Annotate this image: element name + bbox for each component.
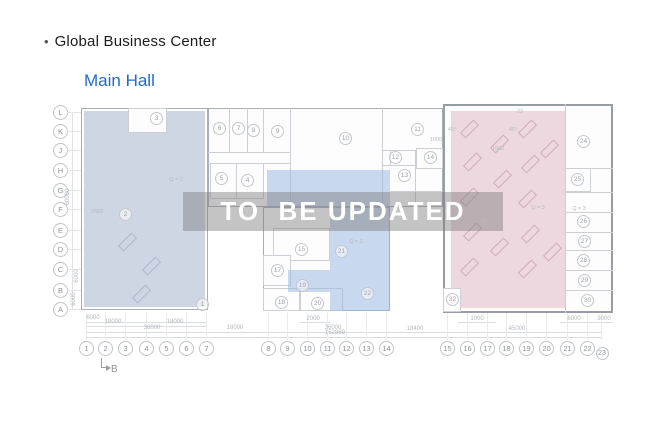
axis-extension-line — [506, 313, 507, 340]
dim-line — [72, 112, 73, 310]
to-be-updated-watermark: TO BE UPDATED — [183, 192, 503, 231]
axis-extension-line — [346, 313, 347, 340]
zone-middle — [288, 270, 330, 292]
wall — [565, 250, 613, 251]
axis-tick — [67, 131, 81, 132]
room-25-outline — [565, 168, 591, 192]
col-axis-label: 15 — [440, 341, 455, 356]
row-axis-label: H — [53, 163, 68, 178]
wall — [565, 104, 566, 313]
row-axis-label: J — [53, 143, 68, 158]
room-3-outline — [128, 108, 167, 133]
wall — [390, 150, 391, 165]
axis-tick — [67, 249, 81, 250]
page-header: • Global Business Center — [44, 33, 217, 50]
axis-extension-line — [287, 313, 288, 340]
axis-extension-line — [587, 313, 588, 340]
axis-extension-line — [467, 313, 468, 340]
col-axis-label: 19 — [519, 341, 534, 356]
col-axis-label: 12 — [339, 341, 354, 356]
wall — [382, 165, 415, 166]
dim-line — [86, 322, 206, 323]
room-32-outline — [443, 288, 461, 312]
col-axis-label: 22 — [580, 341, 595, 356]
col-axis-label: 1 — [79, 341, 94, 356]
col-axis-label: 20 — [539, 341, 554, 356]
axis-extension-line — [447, 313, 448, 340]
page-title: Global Business Center — [55, 33, 217, 50]
room-17-outline — [263, 255, 291, 286]
axis-tick — [67, 150, 81, 151]
dim-line — [86, 337, 601, 338]
col-axis-label: 14 — [379, 341, 394, 356]
row-axis-label: L — [53, 105, 68, 120]
axis-extension-line — [386, 313, 387, 340]
axis-extension-line — [307, 313, 308, 340]
col-axis-label: 2 — [98, 341, 113, 356]
dim-line — [560, 322, 613, 323]
bullet-icon: • — [44, 35, 49, 48]
col-axis-label: 13 — [359, 341, 374, 356]
room-14-outline — [416, 148, 443, 169]
row-axis-label: D — [53, 242, 68, 257]
row-axis-label: C — [53, 262, 68, 277]
dim-line — [458, 322, 496, 323]
hall-title-link[interactable]: Main Hall — [84, 71, 155, 91]
dimension-label: 152869 — [320, 330, 350, 336]
axis-extension-line — [487, 313, 488, 340]
dimension-label: 18000 — [220, 325, 250, 331]
axis-tick — [67, 309, 81, 310]
wall — [565, 232, 613, 233]
axis-extension-line — [327, 313, 328, 340]
wall — [565, 192, 613, 193]
axis-extension-line — [366, 313, 367, 340]
col-axis-label: 18 — [499, 341, 514, 356]
col-axis-label: 5 — [159, 341, 174, 356]
row-axis-label: F — [53, 202, 68, 217]
col-axis-label: 21 — [560, 341, 575, 356]
wall — [229, 108, 230, 152]
wall — [247, 108, 248, 152]
wall — [565, 212, 613, 213]
floor-plan-page: • Global Business Center Main Hall — [0, 0, 660, 440]
axis-tick — [67, 209, 81, 210]
axis-tick — [67, 269, 81, 270]
axis-tick — [67, 170, 81, 171]
row-axis-label: A — [53, 302, 68, 317]
col-axis-label: 11 — [320, 341, 335, 356]
axis-tick — [67, 290, 81, 291]
axis-extension-line — [601, 313, 602, 340]
col-axis-label: 9 — [280, 341, 295, 356]
axis-extension-line — [546, 313, 547, 340]
dimension-label: 6000 — [78, 315, 108, 321]
wall — [565, 290, 613, 291]
row-axis-label: B — [53, 283, 68, 298]
row-axis-label: G — [53, 183, 68, 198]
wall — [208, 152, 290, 153]
dimension-label-vertical: 6000 — [74, 261, 80, 291]
col-axis-label: 6 — [179, 341, 194, 356]
dim-line — [300, 322, 330, 323]
col-axis-label: 23 — [596, 347, 609, 360]
col-axis-label: 10 — [300, 341, 315, 356]
wall — [263, 108, 264, 152]
col-axis-label: 17 — [480, 341, 495, 356]
row-axis-label: E — [53, 223, 68, 238]
row-axis-label: K — [53, 124, 68, 139]
axis-tick — [67, 190, 81, 191]
col-axis-label: 3 — [118, 341, 133, 356]
axis-extension-line — [567, 313, 568, 340]
axis-extension-line — [206, 313, 207, 340]
dim-line — [86, 326, 206, 327]
dimension-label-vertical: 60000 — [65, 182, 71, 212]
col-axis-label: 8 — [261, 341, 276, 356]
axis-tick — [67, 230, 81, 231]
dimension-label: 36000 — [318, 325, 348, 331]
watermark-text: TO BE UPDATED — [220, 196, 465, 227]
col-axis-label: 7 — [199, 341, 214, 356]
axis-extension-line — [268, 313, 269, 340]
section-marker-label: B — [111, 364, 118, 375]
col-axis-label: 4 — [139, 341, 154, 356]
axis-extension-line — [526, 313, 527, 340]
axis-tick — [67, 112, 81, 113]
dim-line — [86, 332, 601, 333]
col-axis-label: 16 — [460, 341, 475, 356]
wall — [565, 270, 613, 271]
